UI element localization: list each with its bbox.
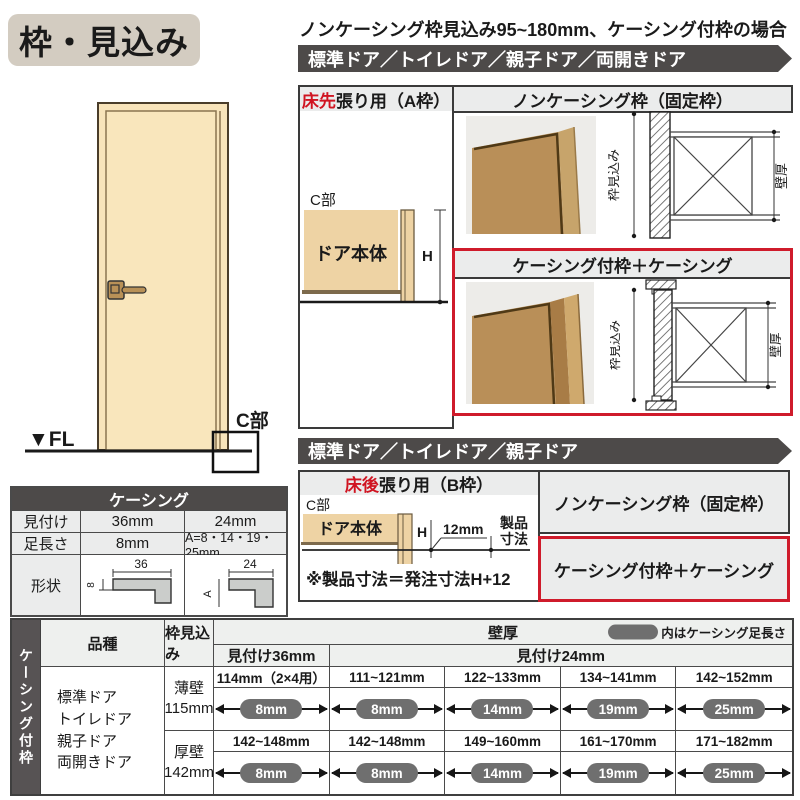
arrow-right-icon [782, 768, 791, 778]
casing-spec-table: ケーシング 見付け 36mm 24mm 足長さ 8mm A=8・14・19・25… [10, 486, 288, 617]
arrow-left-icon [215, 704, 224, 714]
range-cell: 114mm（2×4用） [214, 667, 330, 688]
leg-length-pill: 8mm [240, 699, 302, 719]
value-36: 8mm [80, 533, 184, 554]
wall-thickness-table: ケーシング付枠 品種 枠見込み 壁厚 内はケーシング足長さ 見付け36mm 見付… [10, 618, 794, 796]
product-dim-label-2: 寸法 [500, 531, 528, 547]
arrow-left-icon [562, 768, 571, 778]
h-dimension-label: H [417, 524, 427, 540]
sub-header-24: 見付け24mm [330, 645, 792, 667]
casing-leg-cell: 19mm [561, 752, 677, 794]
depth-thin-wall-cell: 薄壁 115mm [165, 667, 214, 731]
col-header-frame-depth: 枠見込み [165, 620, 214, 667]
range-cell: 142~152mm [676, 667, 792, 688]
product-dim-label-1: 製品 [499, 515, 528, 531]
kind-item: 標準ドア [57, 687, 117, 709]
leg-length-pill: 19mm [587, 763, 649, 783]
range-cell: 122~133mm [445, 667, 561, 688]
frame-section [401, 210, 414, 302]
wall-thickness-dim-label: 壁厚 [774, 163, 789, 189]
b-frame-header-red: 床後 [345, 471, 379, 496]
table-side-label: ケーシング付枠 [12, 620, 41, 794]
casing-door-photo [466, 282, 594, 404]
range-cell: 142~148mm [214, 731, 330, 752]
frame-cross-section [650, 112, 670, 238]
door-handle-lever-icon [122, 287, 146, 293]
arrow-left-icon [215, 768, 224, 778]
col-header-wall: 壁厚 内はケーシング足長さ [214, 620, 792, 645]
arrow-left-icon [331, 768, 340, 778]
arrow-right-icon [319, 704, 328, 714]
arrow-left-icon [677, 768, 686, 778]
dim-24: 24 [243, 557, 257, 571]
page-title: 枠・見込み [8, 14, 200, 66]
arrow-left-icon [446, 704, 455, 714]
arrow-left-icon [677, 704, 686, 714]
a-frame-header-red: 床先 [302, 87, 336, 112]
wall-label: 壁厚 [488, 622, 518, 643]
door-body-label: ドア本体 [318, 519, 383, 538]
kind-item: 両開きドア [57, 752, 132, 774]
side-label-text: ケーシング付枠 [16, 648, 36, 767]
table-row: 形状 36 8 24 A [12, 554, 286, 615]
h-dimension-label: H [422, 248, 433, 265]
legend-text: 内はケーシング足長さ [661, 623, 786, 642]
casing-table-title: ケーシング [12, 488, 286, 510]
casing-option-b-highlight: ケーシング付枠＋ケーシング [538, 536, 790, 602]
depth-label: 厚壁 [174, 743, 204, 763]
a-frame-detail-diagram: C部 ドア本体 H [300, 113, 452, 427]
c-part-label: C部 [306, 497, 330, 513]
noncasing-option-b: ノンケーシング枠（固定枠） [538, 470, 790, 534]
casing-section-diagram: 枠見込み 壁厚 [610, 278, 788, 412]
door-illustration: ▼FL C部 [20, 95, 275, 485]
kind-list-cell: 標準ドア トイレドア 親子ドア 両開きドア [41, 667, 165, 794]
col-header-kind: 品種 [41, 620, 165, 667]
dim-8: 8 [86, 582, 97, 588]
sub-header-36: 見付け36mm [214, 645, 330, 667]
range-cell: 171~182mm [676, 731, 792, 752]
leg-length-pill: 8mm [356, 763, 418, 783]
b-frame-detail-diagram: C部 ドア本体 H 12mm 製品 寸法 [300, 496, 538, 564]
door-face [472, 302, 556, 404]
banner-door-types-a: 標準ドア／トイレドア／親子ドア／両開きドア [298, 45, 792, 72]
legend: 内はケーシング足長さ [608, 623, 786, 642]
a-frame-header: 床先張り用（A枠） [298, 85, 454, 113]
arrow-left-icon [562, 704, 571, 714]
c-part-label: C部 [236, 409, 269, 432]
value-36: 36mm [80, 511, 184, 532]
kind-item: トイレドア [57, 709, 132, 731]
range-cell: 149~160mm [445, 731, 561, 752]
frame-cross-section [654, 290, 672, 400]
banner-door-types-b: 標準ドア／トイレドア／親子ドア [298, 438, 792, 464]
b-frame-header: 床後張り用（B枠） [298, 470, 540, 497]
top-note: ノンケーシング枠見込み95~180mm、ケーシング付枠の場合 [299, 16, 799, 42]
casing-top [646, 280, 676, 289]
fl-label: ▼FL [28, 428, 75, 451]
value-24: A=8・14・19・25mm [184, 533, 286, 554]
range-cell: 134~141mm [561, 667, 677, 688]
noncasing-section-diagram: 枠見込み 壁厚 [608, 104, 792, 246]
leg-length-pill: 14mm [471, 763, 533, 783]
door-body-label: ドア本体 [315, 243, 388, 264]
casing-leg-cell: 19mm [561, 688, 677, 731]
casing-frame-header: ケーシング付枠＋ケーシング [455, 251, 790, 279]
casing-profile-24-diagram: 24 A [191, 557, 281, 613]
leg-length-pill: 25mm [703, 763, 765, 783]
leg-length-pill: 25mm [703, 699, 765, 719]
depth-value: 115mm [165, 699, 214, 719]
frame-section [398, 514, 412, 564]
dim-36: 36 [134, 557, 148, 571]
casing-leg-cell: 25mm [676, 688, 792, 731]
casing-leg-cell: 14mm [445, 688, 561, 731]
casing-bottom [646, 401, 676, 410]
arrow-right-icon [550, 768, 559, 778]
kind-item: 親子ドア [57, 731, 117, 753]
row-label: 足長さ [12, 533, 80, 554]
arrow-right-icon [434, 768, 443, 778]
product-dim-note: ※製品寸法＝発注寸法H+12 [306, 566, 536, 590]
depth-value: 142mm [164, 763, 214, 783]
dim-a: A [202, 590, 214, 598]
arrow-right-icon [434, 704, 443, 714]
leg-length-pill: 8mm [356, 699, 418, 719]
casing-leg-cell: 8mm [214, 752, 330, 794]
noncasing-door-photo [466, 116, 596, 234]
leg-length-pill: 8mm [240, 763, 302, 783]
range-cell: 142~148mm [330, 731, 446, 752]
arrow-right-icon [782, 704, 791, 714]
pill-legend-icon [608, 625, 658, 640]
casing-leg-cell: 25mm [676, 752, 792, 794]
arrow-right-icon [665, 704, 674, 714]
casing-profile-36-diagram: 36 8 [83, 557, 183, 613]
arrow-left-icon [446, 768, 455, 778]
shape-36-cell: 36 8 [80, 555, 184, 615]
frame-depth-dim-label: 枠見込み [608, 149, 621, 201]
table-grid: 品種 枠見込み 壁厚 内はケーシング足長さ 見付け36mm 見付け24mm 標準… [41, 620, 792, 794]
wall-thickness-dim-label: 壁厚 [768, 332, 783, 357]
range-cell: 111~121mm [330, 667, 446, 688]
range-cell: 161~170mm [561, 731, 677, 752]
casing-leg-cell: 8mm [330, 752, 446, 794]
b-frame-header-rest: 張り用（B枠） [379, 471, 493, 496]
table-row: 足長さ 8mm A=8・14・19・25mm [12, 532, 286, 554]
casing-leg-cell: 8mm [330, 688, 446, 731]
casing-leg-cell: 8mm [214, 688, 330, 731]
dim-12mm-label: 12mm [443, 521, 483, 537]
depth-thick-wall-cell: 厚壁 142mm [165, 731, 214, 794]
row-label: 見付け [12, 511, 80, 532]
depth-label: 薄壁 [174, 679, 204, 699]
c-part-label: C部 [310, 192, 336, 209]
leg-length-pill: 19mm [587, 699, 649, 719]
leg-length-pill: 14mm [471, 699, 533, 719]
arrow-right-icon [319, 768, 328, 778]
arrow-left-icon [331, 704, 340, 714]
frame-depth-dim-label: 枠見込み [610, 320, 622, 370]
arrow-right-icon [550, 704, 559, 714]
row-label: 形状 [12, 555, 80, 615]
a-frame-header-rest: 張り用（A枠） [336, 87, 450, 112]
shape-24-cell: 24 A [184, 555, 286, 615]
arrow-right-icon [665, 768, 674, 778]
casing-leg-cell: 14mm [445, 752, 561, 794]
